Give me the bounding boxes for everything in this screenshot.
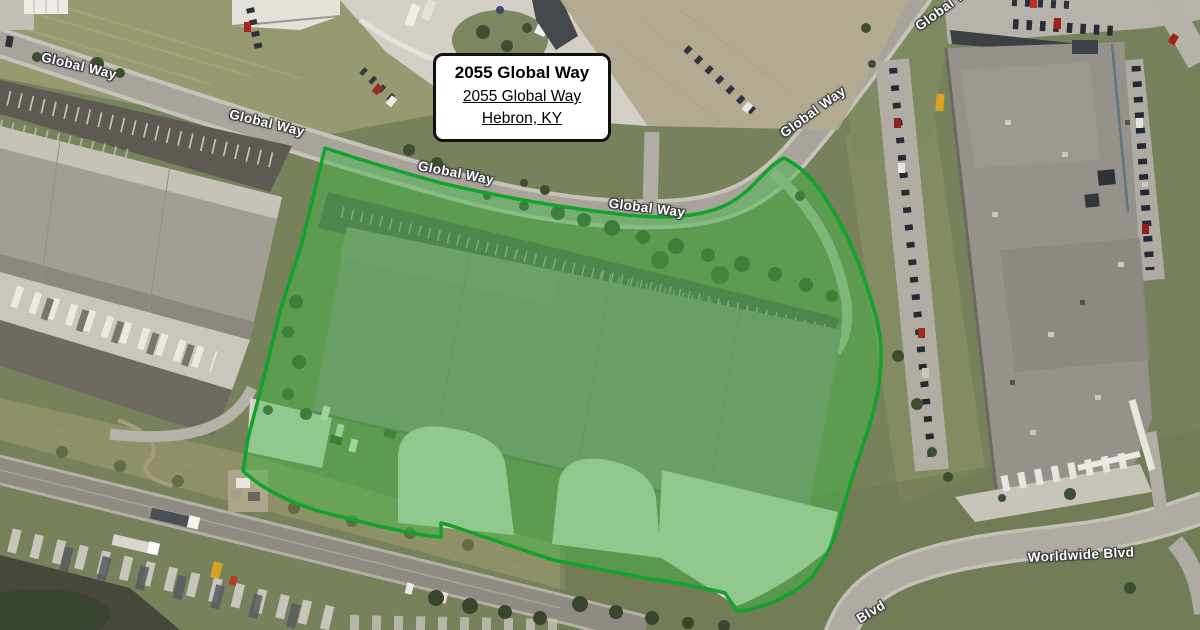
property-info-box: 2055 Global Way 2055 Global Way Hebron, …: [433, 53, 611, 142]
property-title: 2055 Global Way: [440, 63, 604, 83]
property-city-link[interactable]: Hebron, KY: [440, 108, 604, 130]
property-address-link[interactable]: 2055 Global Way: [440, 86, 604, 108]
satellite-map[interactable]: Global Way Global Way Global Way Global …: [0, 0, 1200, 630]
